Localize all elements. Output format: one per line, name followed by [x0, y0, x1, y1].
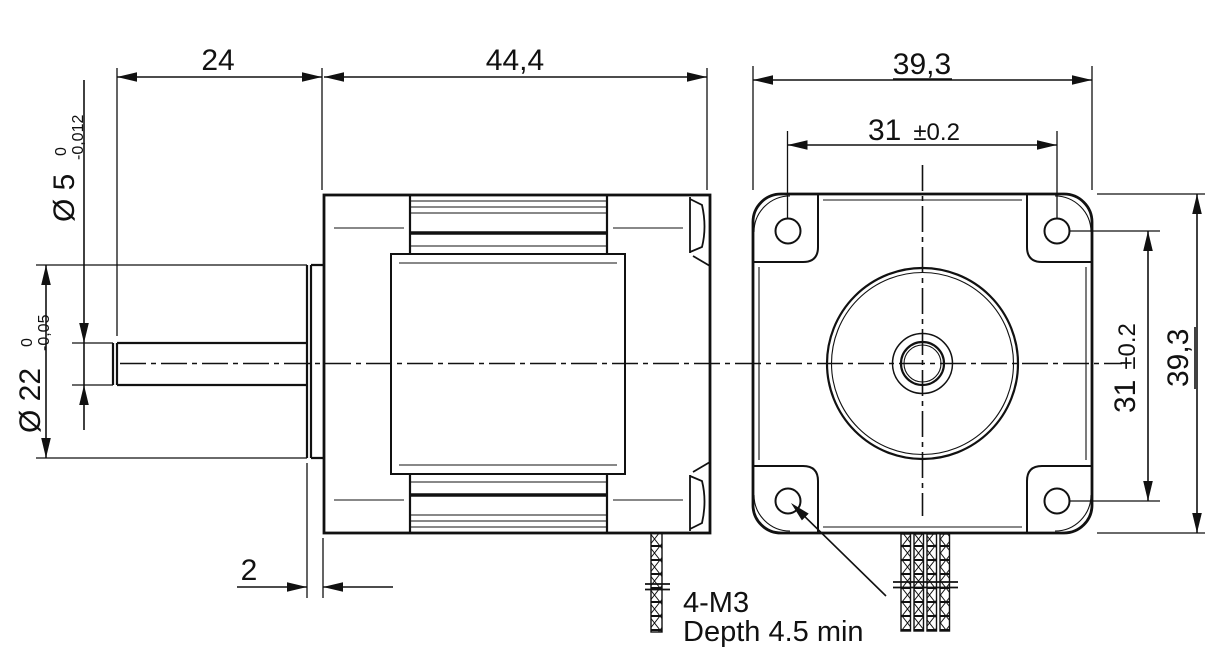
- front-view: [753, 165, 1092, 631]
- pilot-tol-lower: -0,05: [36, 314, 53, 351]
- mounting-hole-top-left: [776, 219, 801, 244]
- technical-drawing-page: 24 44,4 39,3 31±0.2 2 Ø 5 0 -0,012 Ø 22 …: [0, 0, 1226, 666]
- mounting-note-line2: Depth 4.5 min: [683, 616, 864, 648]
- dim-overall-width-label: 39,3: [893, 48, 951, 81]
- rear-terminal-bottom: [690, 462, 710, 531]
- mounting-hole-bottom-right: [1045, 489, 1070, 514]
- rear-terminal-top: [690, 197, 710, 266]
- dim-shaft-length-label: 24: [201, 44, 234, 77]
- dim-pilot-diameter-label: Ø 22 0 -0,05: [14, 314, 53, 433]
- mounting-note-line1: 4-M3: [683, 587, 749, 619]
- dim-hole-spacing-v-label: 31±0.2: [1109, 323, 1142, 413]
- svg-text:39,3: 39,3: [1162, 329, 1195, 387]
- shaft-tol-upper: 0: [53, 147, 70, 156]
- dimensions: 24 44,4 39,3 31±0.2 2 Ø 5 0 -0,012 Ø 22 …: [14, 44, 1205, 648]
- dimension-lines: [46, 77, 1197, 596]
- svg-text:Ø 5: Ø 5: [48, 174, 81, 222]
- side-cable: [651, 533, 662, 632]
- dim-pilot-depth-label: 2: [241, 554, 258, 587]
- leader-line: [795, 507, 886, 596]
- shaft-tol-lower: -0,012: [70, 115, 87, 160]
- side-view: [113, 195, 710, 632]
- dim-body-length-label: 44,4: [486, 44, 544, 77]
- pilot-tol-upper: 0: [19, 338, 36, 347]
- mounting-hole-top-right: [1045, 219, 1070, 244]
- dim-shaft-diameter-label: Ø 5 0 -0,012: [48, 115, 87, 222]
- dim-hole-spacing-h-label: 31±0.2: [868, 114, 960, 147]
- motor-dimension-drawing: 24 44,4 39,3 31±0.2 2 Ø 5 0 -0,012 Ø 22 …: [0, 0, 1226, 666]
- svg-text:31±0.2: 31±0.2: [1109, 323, 1142, 413]
- pilot-boss: [307, 265, 324, 458]
- dim-overall-height-label: 39,3: [1162, 327, 1195, 389]
- svg-text:Ø 22: Ø 22: [14, 368, 47, 433]
